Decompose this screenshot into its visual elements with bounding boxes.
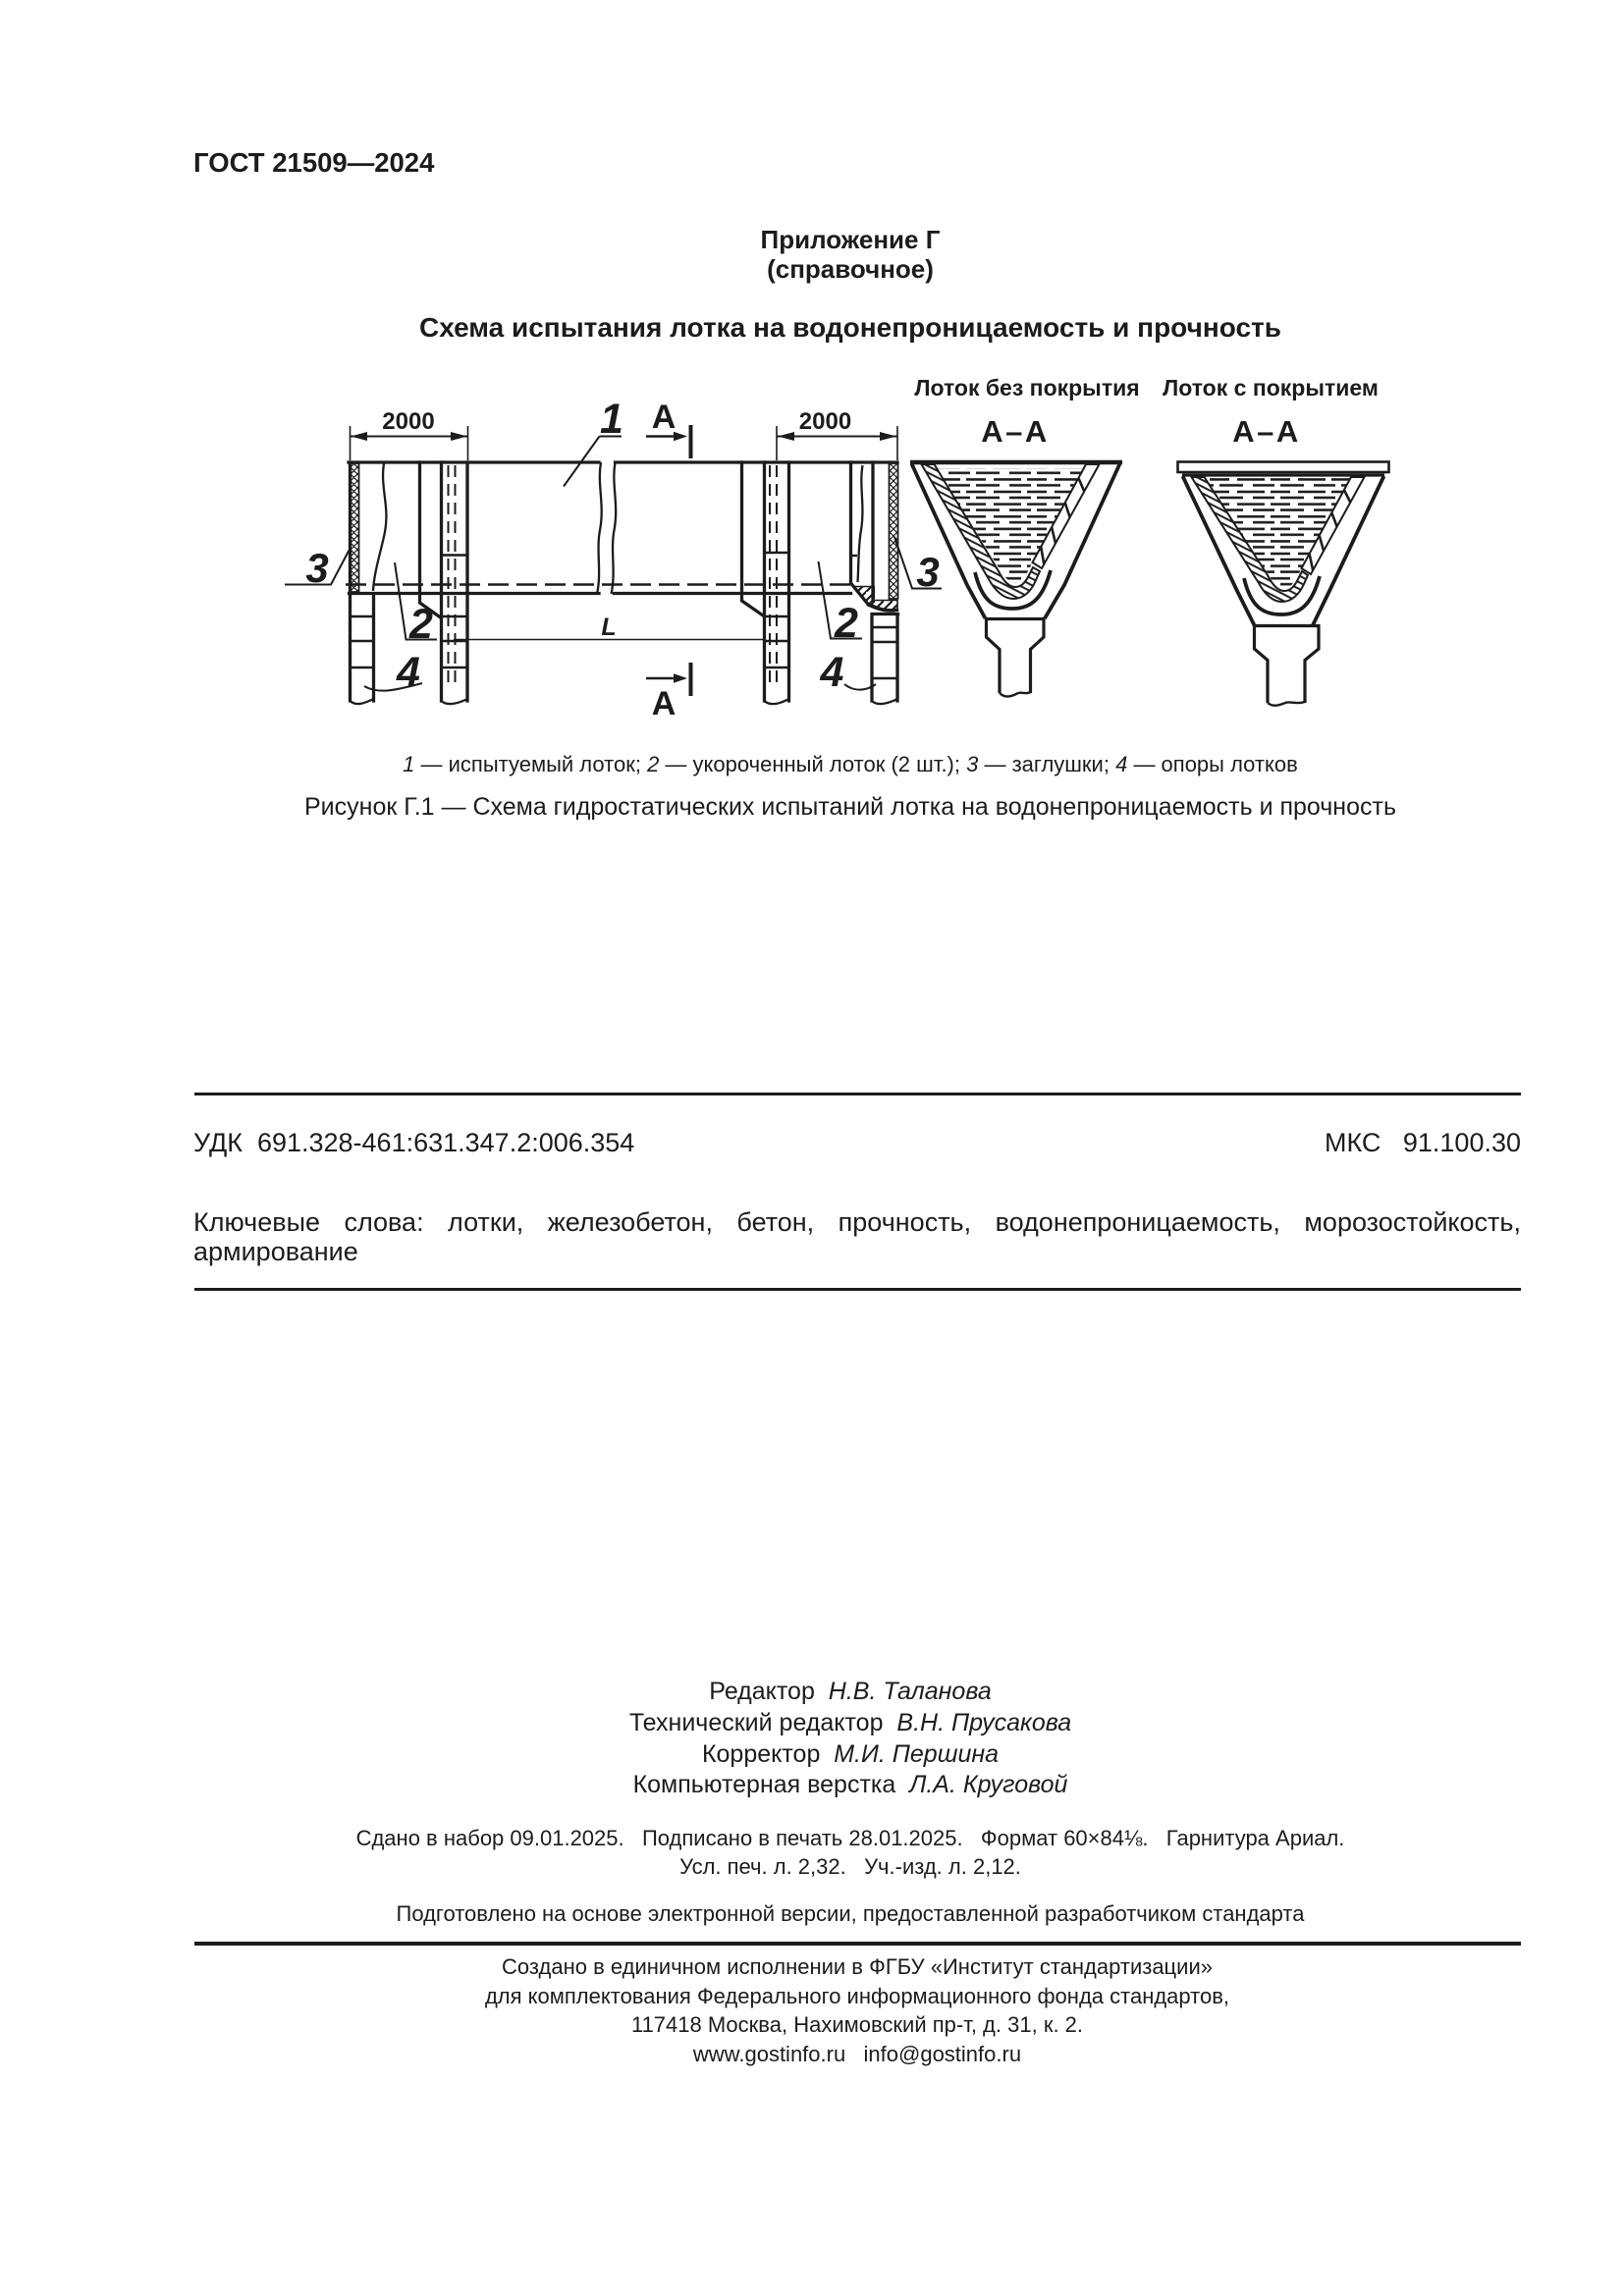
svg-text:3: 3 bbox=[305, 545, 328, 591]
svg-text:1: 1 bbox=[600, 396, 623, 443]
svg-text:А–А: А–А bbox=[981, 414, 1050, 449]
svg-text:2000: 2000 bbox=[799, 408, 851, 435]
svg-text:Лоток без покрытия: Лоток без покрытия bbox=[914, 375, 1139, 400]
svg-text:2: 2 bbox=[408, 601, 433, 648]
svg-text:Лоток с покрытием: Лоток с покрытием bbox=[1163, 375, 1379, 400]
svg-text:2: 2 bbox=[834, 600, 858, 647]
svg-text:2000: 2000 bbox=[382, 408, 434, 435]
svg-text:L: L bbox=[601, 614, 616, 641]
svg-text:4: 4 bbox=[820, 649, 844, 696]
svg-text:4: 4 bbox=[396, 649, 420, 696]
svg-text:3: 3 bbox=[916, 549, 939, 595]
svg-text:А: А bbox=[652, 399, 677, 436]
svg-text:А: А bbox=[652, 685, 677, 722]
svg-text:А–А: А–А bbox=[1232, 414, 1301, 449]
